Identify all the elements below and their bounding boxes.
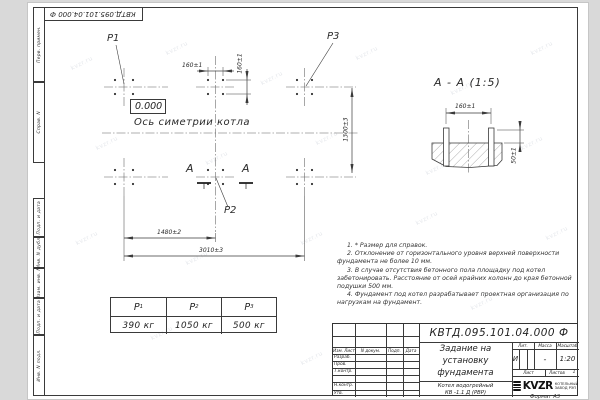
stamp-lit-label: Лит. — [512, 342, 534, 349]
dim-bolt-spacing-x: 160±1 — [182, 62, 202, 69]
section-cut-marks — [197, 183, 253, 189]
loads-table-header-p1: P1 — [111, 298, 166, 316]
plan-anchor-bolts — [114, 79, 313, 185]
section-letter-right: А — [242, 162, 250, 175]
section-dim-bolt-spacing: 160±1 — [455, 103, 475, 110]
load-point-p1-label: P1 — [107, 33, 119, 44]
company-name-line-2: ЗАВОД РЭП — [555, 386, 579, 390]
stamp-role-empty — [334, 375, 355, 382]
stamp-title-line-2: установку — [419, 355, 512, 367]
stamp-role-razrab: Разраб. — [334, 354, 355, 361]
format-label: Формат А3 — [515, 394, 575, 400]
company-logo: KVZR КОТЕЛЬНЫЙ ЗАВОД РЭП — [512, 376, 579, 396]
notes-block: 1. * Размер для справок. 2. Отклонение о… — [337, 242, 573, 308]
stamp-hdr-ndokum: N докум. — [355, 347, 386, 354]
dim-total-width: 3010±3 — [199, 247, 223, 254]
axis-of-symmetry-label: Ось симетрии котла — [134, 117, 250, 128]
plan-centerlines — [102, 56, 469, 232]
stamp-role-utv: Утв. — [334, 390, 355, 398]
section-view — [432, 128, 502, 168]
note-3: 3. В случае отсутствия бетонного пола пл… — [337, 267, 573, 292]
anchor-bolt-left — [444, 128, 450, 166]
note-1: 1. * Размер для справок. — [337, 242, 573, 250]
section-letter-left: А — [186, 162, 194, 175]
load-point-p3-label: P3 — [327, 31, 339, 42]
stamp-hdr-data: Дата — [403, 347, 419, 354]
stamp-sheets-value: 1 — [569, 369, 579, 376]
stamp-role-nkontr: Н.контр. — [334, 382, 355, 390]
section-title: А - А (1:5) — [434, 76, 501, 89]
loads-table: P1 P2 P3 390 кг 1050 кг 500 кг — [110, 297, 277, 333]
loads-table-value-p1: 390 кг — [111, 316, 166, 334]
stamp-lit-value: И — [512, 349, 519, 369]
dim-left-to-center: 1480±2 — [157, 229, 181, 236]
kvzr-logo-icon — [513, 381, 521, 391]
stamp-role-tkontr: Т.контр. — [334, 368, 355, 375]
note-2: 2. Отклонение от горизонтального уровня … — [337, 250, 573, 266]
anchor-bolt-right — [489, 128, 495, 166]
stamp-sheets-label: Листов — [545, 369, 569, 376]
stamp-product-line-1: Котел водогрейный — [419, 382, 512, 389]
stamp-sheet-label: Лист — [512, 369, 545, 376]
kvzr-logo-text: KVZR — [523, 380, 553, 392]
loads-table-header-p3: P3 — [221, 298, 276, 316]
company-name: КОТЕЛЬНЫЙ ЗАВОД РЭП — [555, 382, 579, 391]
stamp-role-prov: Пров. — [334, 361, 355, 368]
section-dim-protrusion: 50±1 — [511, 144, 518, 168]
stamp-hdr-podp: Подп. — [386, 347, 403, 354]
stamp-title-line-1: Задание на — [419, 343, 512, 355]
load-point-p2-label: P2 — [224, 205, 236, 216]
title-block: КВТД.095.101.04.000 Ф Изм. Лист N докум.… — [332, 323, 578, 396]
elevation-mark: 0.000 — [130, 99, 166, 114]
loads-table-value-p2: 1050 кг — [166, 316, 221, 334]
stamp-hdr-izm-list: Изм. Лист — [333, 347, 355, 354]
stamp-mass-value: - — [534, 349, 556, 369]
dim-row-spacing: 1300±3 — [343, 114, 350, 146]
stamp-scale-label: Масштаб — [556, 342, 579, 349]
loads-table-header-p2: P2 — [166, 298, 221, 316]
dim-bolt-spacing-y: 160±1 — [237, 51, 244, 77]
stamp-product-line-2: КВ -1.1 Д (РВР) — [419, 389, 512, 396]
loads-table-value-p3: 500 кг — [221, 316, 276, 334]
stamp-scale-value: 1:20 — [556, 349, 579, 369]
note-4: 4. Фундамент под котел разрабатывает про… — [337, 291, 573, 307]
drawing-sheet: kvzr.rukvzr.rukvzr.rukvzr.rukvzr.rukvzr.… — [0, 0, 600, 400]
stamp-mass-label: Масса — [534, 342, 556, 349]
stamp-doc-number: КВТД.095.101.04.000 Ф — [419, 324, 579, 342]
stamp-title-line-3: фундамента — [419, 367, 512, 379]
